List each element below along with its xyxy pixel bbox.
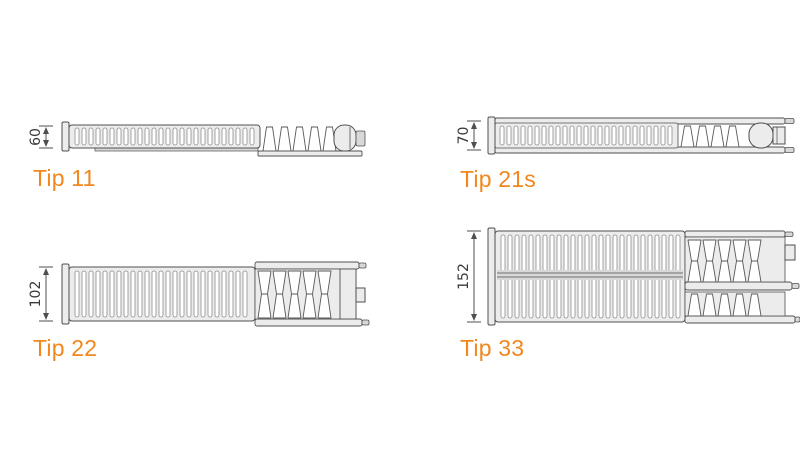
radiator-figure-tip-11: 60 Tip 11 bbox=[20, 106, 380, 190]
dimension-label: 60 bbox=[28, 128, 44, 146]
dimension-indicator: 152 bbox=[456, 231, 481, 322]
radiator-types-diagram: 60 Tip 11 70 Tip 21s 102 Tip 22 152 Tip … bbox=[0, 0, 800, 465]
dimension-indicator: 70 bbox=[456, 121, 481, 150]
radiator-figure-tip-21s: 70 Tip 21s bbox=[448, 103, 800, 191]
radiator-type-label-tip-22: Tip 22 bbox=[33, 337, 380, 360]
dimension-indicator: 102 bbox=[28, 267, 53, 321]
radiator-figure-tip-33: 152 Tip 33 bbox=[448, 220, 800, 360]
radiator-drawing-tip-33: 152 bbox=[448, 220, 800, 333]
radiator-drawing-tip-11: 60 bbox=[20, 106, 380, 164]
radiator-type-label-tip-33: Tip 33 bbox=[460, 337, 800, 360]
radiator-type-label-tip-11: Tip 11 bbox=[33, 167, 380, 190]
dimension-label: 102 bbox=[28, 281, 44, 308]
dimension-label: 70 bbox=[456, 127, 472, 145]
dimension-indicator: 60 bbox=[28, 126, 53, 148]
radiator-drawing-tip-22: 102 bbox=[20, 253, 380, 333]
dimension-label: 152 bbox=[456, 263, 472, 290]
radiator-type-label-tip-21s: Tip 21s bbox=[460, 168, 800, 191]
radiator-drawing-tip-21s: 70 bbox=[448, 103, 800, 167]
radiator-figure-tip-22: 102 Tip 22 bbox=[20, 253, 380, 360]
